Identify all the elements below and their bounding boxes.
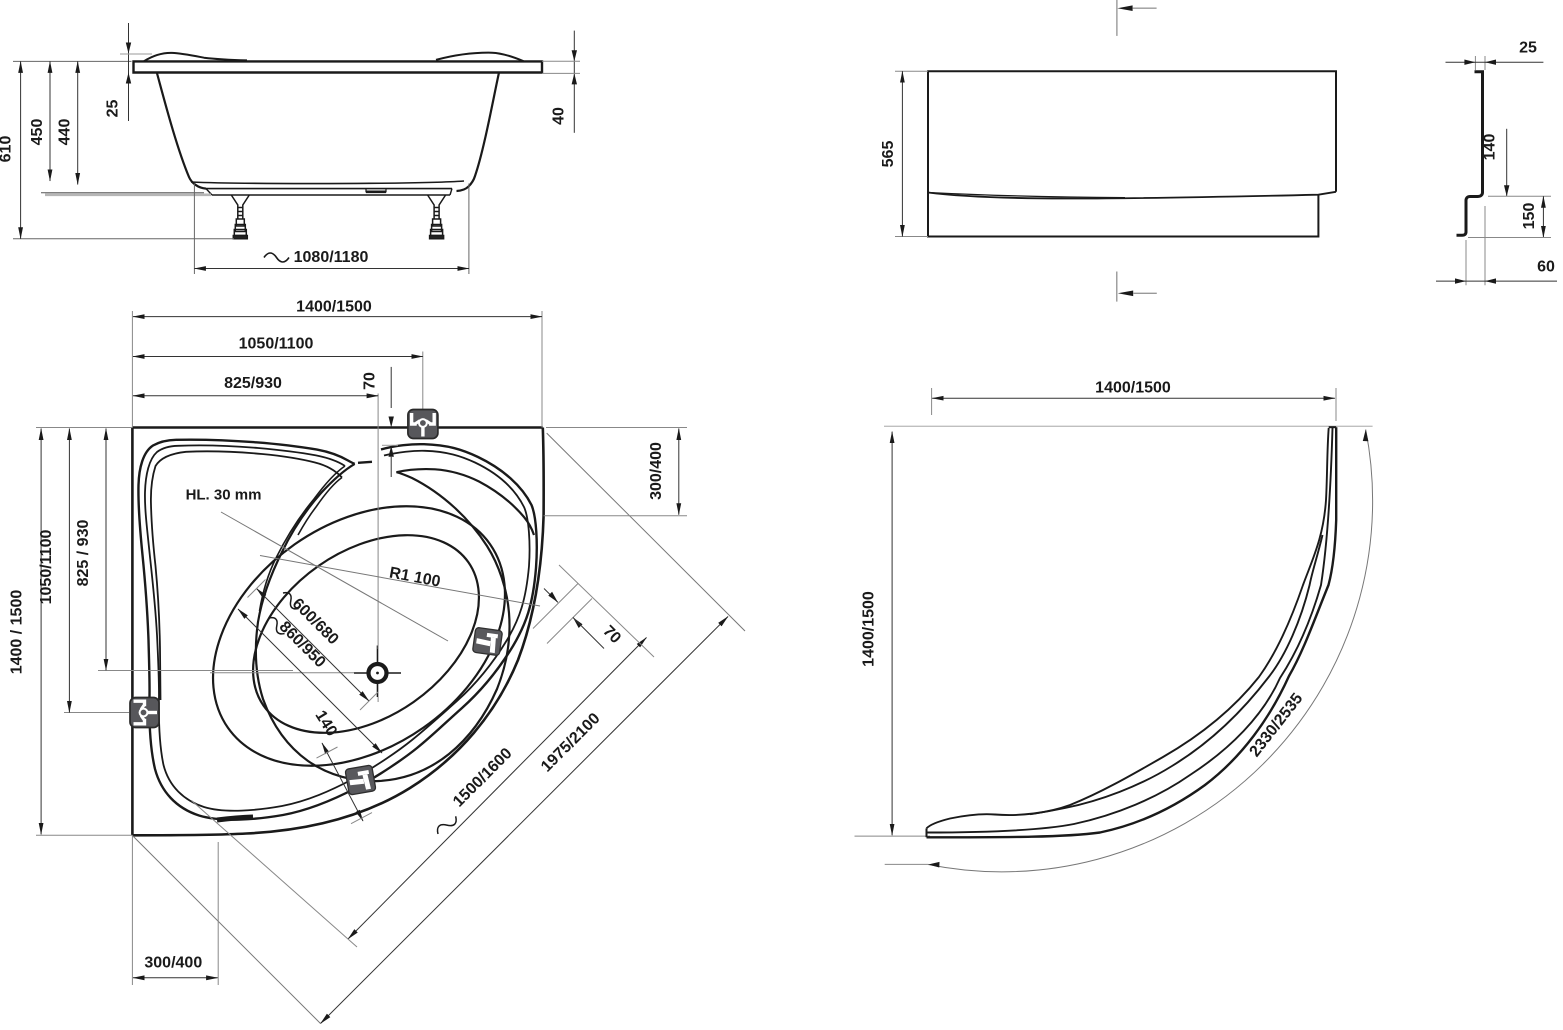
svg-text:1050/1100: 1050/1100: [239, 336, 314, 353]
svg-text:140: 140: [1482, 134, 1499, 161]
svg-text:610: 610: [0, 136, 15, 163]
svg-text:440: 440: [56, 119, 73, 146]
svg-text:1400 / 1500: 1400 / 1500: [9, 590, 26, 675]
svg-text:825 / 930: 825 / 930: [75, 520, 92, 587]
svg-text:1050/1100: 1050/1100: [38, 530, 55, 605]
svg-text:40: 40: [551, 107, 568, 125]
svg-text:1400/1500: 1400/1500: [1095, 380, 1171, 397]
svg-text:60: 60: [1537, 259, 1555, 276]
svg-text:1400/1500: 1400/1500: [861, 591, 878, 667]
svg-text:565: 565: [880, 141, 897, 168]
svg-text:825/930: 825/930: [224, 375, 282, 392]
svg-text:25: 25: [1519, 40, 1537, 57]
svg-text:1400/1500: 1400/1500: [296, 299, 372, 316]
svg-text:150: 150: [1521, 203, 1538, 230]
svg-text:1080/1180: 1080/1180: [294, 249, 369, 266]
svg-text:450: 450: [29, 119, 46, 146]
svg-text:HL. 30 mm: HL. 30 mm: [186, 487, 262, 504]
svg-text:70: 70: [362, 372, 379, 390]
svg-text:300/400: 300/400: [144, 955, 202, 972]
svg-text:300/400: 300/400: [648, 442, 665, 500]
svg-text:25: 25: [105, 100, 122, 118]
